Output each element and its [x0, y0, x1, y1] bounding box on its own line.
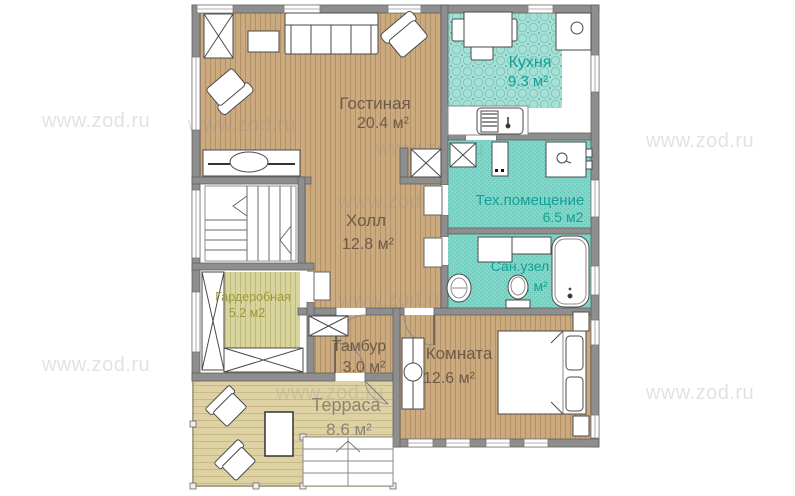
- wardrobe-label: Гардеробная: [215, 290, 291, 304]
- wardrobe-cabinet: [411, 149, 441, 177]
- wardrobe-cabinet: [309, 316, 348, 336]
- window: [591, 55, 599, 92]
- bathtub: [552, 236, 589, 307]
- window: [591, 180, 599, 217]
- tech-room-area: 6.5 м2: [543, 209, 584, 225]
- living-hall-opening-floor: [311, 177, 400, 185]
- coffee-table: [248, 31, 279, 52]
- window: [446, 439, 470, 447]
- watermark-text: www.zod.ru: [645, 382, 754, 404]
- boiler: [546, 142, 592, 177]
- living-room-area: 20.4 м²: [357, 115, 410, 132]
- terrace-area: 8.6 м²: [326, 420, 372, 439]
- stairs: [205, 186, 296, 261]
- floor-plan-svg: www.zod.ru www.zod.ru www.zod.ru www.zod…: [0, 0, 795, 496]
- wardrobe-area: 5.2 м2: [229, 306, 265, 320]
- wardrobe-door-opening: [307, 272, 314, 302]
- washbasin: [447, 274, 471, 302]
- bedroom-label: Комната: [426, 344, 493, 363]
- wall-wardrobe-right: [307, 302, 314, 373]
- window: [192, 292, 200, 352]
- tech-door-leaf: [424, 186, 442, 215]
- wall-hall-stairs: [298, 177, 305, 270]
- kitchen-counter: [556, 13, 591, 50]
- wall-living-bottom-right: [400, 177, 441, 184]
- window: [284, 5, 320, 13]
- window: [591, 266, 599, 295]
- wall-bedroom-left: [393, 308, 400, 447]
- terrace-table: [265, 412, 293, 456]
- window: [591, 320, 599, 345]
- wall-tech-bath: [448, 228, 591, 234]
- wall-mid-c: [434, 308, 591, 315]
- kitchen-area: 9.3 м²: [508, 73, 548, 90]
- wardrobe-cabinet: [204, 14, 233, 58]
- entry-steps: [303, 437, 393, 486]
- wall-mid-a: [298, 308, 336, 315]
- window: [591, 415, 599, 438]
- watermark-text: www.zod.ru: [187, 114, 296, 136]
- watermark-text: www.zod.ru: [645, 130, 754, 152]
- tech-room-label: Тех.помещение: [476, 192, 585, 209]
- window: [408, 439, 433, 447]
- floor-plan-image: www.zod.ru www.zod.ru www.zod.ru www.zod…: [0, 0, 795, 496]
- kitchen-sink: [448, 106, 528, 135]
- tambour-area: 3.0 м²: [342, 359, 386, 376]
- wall-kitchen-living: [441, 5, 448, 185]
- window: [486, 439, 510, 447]
- wall-stairs-wardrobe: [192, 263, 314, 270]
- window: [388, 5, 421, 13]
- window: [524, 439, 548, 447]
- kitchen-label: Кухня: [509, 54, 552, 71]
- hall-label: Холл: [346, 211, 386, 230]
- bathroom-label: Сан.узел: [491, 258, 549, 274]
- window: [197, 5, 233, 13]
- console-table: [203, 150, 300, 176]
- nightstand: [573, 416, 589, 436]
- sofa: [285, 13, 378, 54]
- tambour-label: Тамбур: [332, 338, 386, 355]
- bedroom-area: 12.6 м²: [423, 370, 476, 387]
- wardrobe-cabinet: [224, 348, 303, 372]
- dresser: [402, 338, 424, 409]
- terrace-label: Терраса: [311, 395, 381, 415]
- kitchen-table: [464, 12, 512, 47]
- nightstand: [573, 312, 589, 331]
- hall-area: 12.8 м²: [342, 236, 395, 253]
- window: [192, 190, 200, 258]
- window: [528, 5, 553, 13]
- bed: [498, 331, 586, 414]
- wall-living-bottom: [192, 177, 311, 184]
- washing-machine: [450, 143, 476, 167]
- water-heater: [492, 142, 508, 176]
- pillow: [566, 336, 583, 370]
- watermark-text: www.zod.ru: [41, 354, 150, 376]
- pillow: [566, 377, 583, 411]
- wall-bottom-band-a: [192, 373, 335, 381]
- watermark-text: www.zod.ru: [41, 110, 150, 132]
- wall-hall-tech: [441, 215, 448, 237]
- living-room-label: Гостиная: [339, 94, 410, 113]
- wall-stub: [400, 148, 408, 177]
- toilet: [506, 275, 530, 308]
- wardrobe-door-leaf: [314, 272, 330, 300]
- window: [192, 57, 200, 130]
- wardrobe-cabinet: [202, 272, 224, 370]
- bath-door-leaf: [424, 238, 442, 267]
